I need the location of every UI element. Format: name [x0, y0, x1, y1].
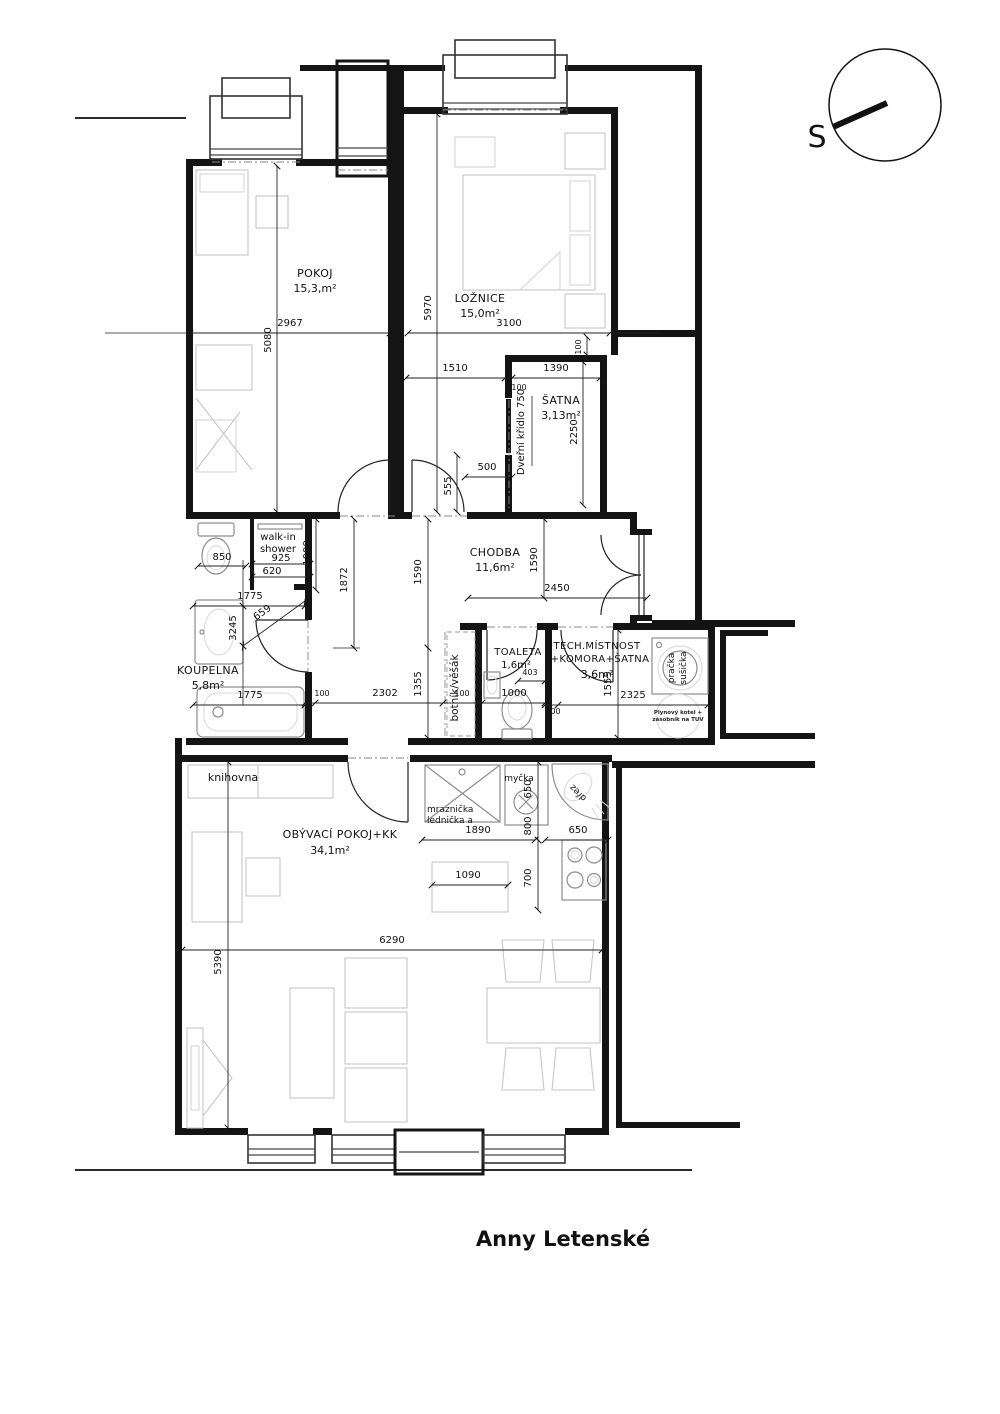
- label-sink: dřez: [568, 782, 589, 803]
- chair-3: [502, 1048, 544, 1090]
- walls: [75, 61, 815, 1170]
- tv-unit: [187, 1028, 232, 1128]
- dim-kk-800: 800: [523, 816, 534, 835]
- label-shoe-rack: botník/věšák: [449, 654, 461, 722]
- room-area-pokoj: 15,3,m²: [293, 282, 336, 295]
- dim-chodba-1590b: 1590: [529, 547, 540, 572]
- dim-kk-700: 700: [523, 868, 534, 887]
- label-fridge-1: mraznička: [427, 804, 473, 815]
- stove: [562, 840, 606, 900]
- room-label-toaleta: TOALETA: [493, 647, 542, 658]
- dim-chodba-100a: 100: [314, 689, 329, 698]
- compass-label: S: [807, 120, 826, 155]
- dim-loznice-height: 5970: [423, 295, 434, 320]
- dim-pokoj-width: 2967: [277, 318, 302, 329]
- dim-satna-door-width: 500: [477, 462, 496, 473]
- dim-satna-width: 1390: [543, 363, 568, 374]
- dim-koupelna-1775b: 1775: [237, 690, 262, 701]
- dim-pokoj-height: 5080: [263, 327, 274, 352]
- label-washer-2: sušička: [678, 651, 689, 684]
- dim-kk-1090: 1090: [455, 870, 480, 881]
- dresser-pokoj: [196, 345, 252, 390]
- wardrobe-pokoj: [196, 398, 252, 470]
- room-label-koupelna: KOUPELNA: [177, 664, 239, 677]
- shower-rail: [258, 524, 302, 529]
- dim-chodba-2302: 2302: [372, 688, 397, 699]
- bed-pokoj: [196, 170, 248, 255]
- dim-chodba-1590a: 1590: [413, 559, 424, 584]
- sofa-2: [345, 1012, 407, 1064]
- label-door-leaf: Dveřní křídlo 750: [515, 389, 527, 475]
- nightstand-loznice-1: [565, 133, 605, 169]
- dim-satna-door-offset: 555: [443, 476, 454, 495]
- room-label-pokoj: POKOJ: [297, 267, 333, 280]
- floor-plan-drawing: 2967 5080 5970 3100 1510 1390 100 100 22…: [0, 0, 1000, 1414]
- label-washer-1: pračka: [666, 653, 677, 683]
- chair-2: [552, 940, 594, 982]
- room-area-koupelna: 5,8m²: [192, 679, 225, 692]
- dim-kk-1890: 1890: [465, 825, 490, 836]
- compass: S: [807, 49, 941, 161]
- dim-satna-offset: 1510: [442, 363, 467, 374]
- room-area-tech: 3,6m²: [581, 668, 614, 681]
- label-dishwasher: myčka: [504, 773, 534, 784]
- bed-loznice: [463, 175, 595, 290]
- desk-chair: [246, 858, 280, 896]
- dim-satna-height: 2250: [569, 419, 580, 444]
- dim-chodba-1872: 1872: [339, 567, 350, 592]
- dim-chodba-2450: 2450: [544, 583, 569, 594]
- rug: [290, 988, 334, 1098]
- chair-1: [502, 940, 544, 982]
- dim-toaleta-width: 1000: [501, 688, 526, 699]
- dim-obyvaci-width: 6290: [379, 935, 404, 946]
- sofa-3: [345, 1068, 407, 1122]
- door-living: [348, 762, 408, 822]
- nightstand-loznice-2: [565, 294, 605, 328]
- dim-satna-gap-v: 100: [574, 339, 583, 354]
- dim-loznice-width: 3100: [496, 318, 521, 329]
- door-entrance-double: [601, 535, 644, 615]
- room-label-loznice: LOŽNICE: [455, 292, 506, 305]
- desk: [192, 832, 242, 922]
- dim-chodba-1355: 1355: [413, 671, 424, 696]
- plan-title: Anny Letenské: [476, 1227, 650, 1251]
- dim-shower-1000: 1000: [302, 540, 313, 565]
- dining-table: [487, 988, 600, 1043]
- label-bookcase: knihovna: [208, 771, 258, 784]
- compass-needle: [833, 103, 887, 127]
- door-pokoj: [338, 460, 390, 512]
- room-label-tech: TECH.MÍSTNOST: [553, 639, 641, 652]
- door-loznice: [412, 460, 464, 512]
- label-boiler-1: Plynový kotel +: [654, 709, 703, 716]
- dim-wc-offset: 850: [212, 552, 231, 563]
- nightstand-pokoj: [256, 196, 288, 228]
- door-koupelna: [256, 620, 308, 672]
- room-area-obyvaci: 34,1m²: [310, 844, 350, 857]
- room-area-loznice: 15,0m²: [460, 307, 500, 320]
- dim-obyvaci-height: 5390: [213, 949, 224, 974]
- room-area-satna: 3,13m²: [541, 409, 581, 422]
- bench-loznice: [455, 137, 495, 167]
- sofa-1: [345, 958, 407, 1008]
- dim-tech-width: 2325: [620, 690, 645, 701]
- room-label-tech-2: +KOMORA+ŠATNA: [551, 652, 650, 665]
- room-area-chodba: 11,6m²: [475, 561, 515, 574]
- chair-4: [552, 1048, 594, 1090]
- room-label-chodba: CHODBA: [470, 546, 521, 559]
- label-boiler-2: zásobník na TUV: [652, 716, 704, 723]
- label-walkin-2: shower: [260, 544, 297, 555]
- room-label-satna: ŠATNA: [542, 394, 580, 407]
- room-label-obyvaci: OBÝVACÍ POKOJ+KK: [283, 828, 398, 841]
- dim-koupelna-height: 3245: [228, 615, 239, 640]
- boiler: [656, 694, 700, 738]
- room-area-toaleta: 1,6m²: [501, 660, 531, 671]
- dim-koupelna-1775a: 1775: [237, 591, 262, 602]
- label-fridge-2: lednička a: [427, 815, 473, 826]
- floor-plan-page: 2967 5080 5970 3100 1510 1390 100 100 22…: [0, 0, 1000, 1414]
- dim-kk-650a: 650: [568, 825, 587, 836]
- dim-tech-100: 100: [545, 707, 560, 716]
- dim-shower-620: 620: [262, 566, 281, 577]
- label-walkin-1: walk-in: [260, 532, 296, 543]
